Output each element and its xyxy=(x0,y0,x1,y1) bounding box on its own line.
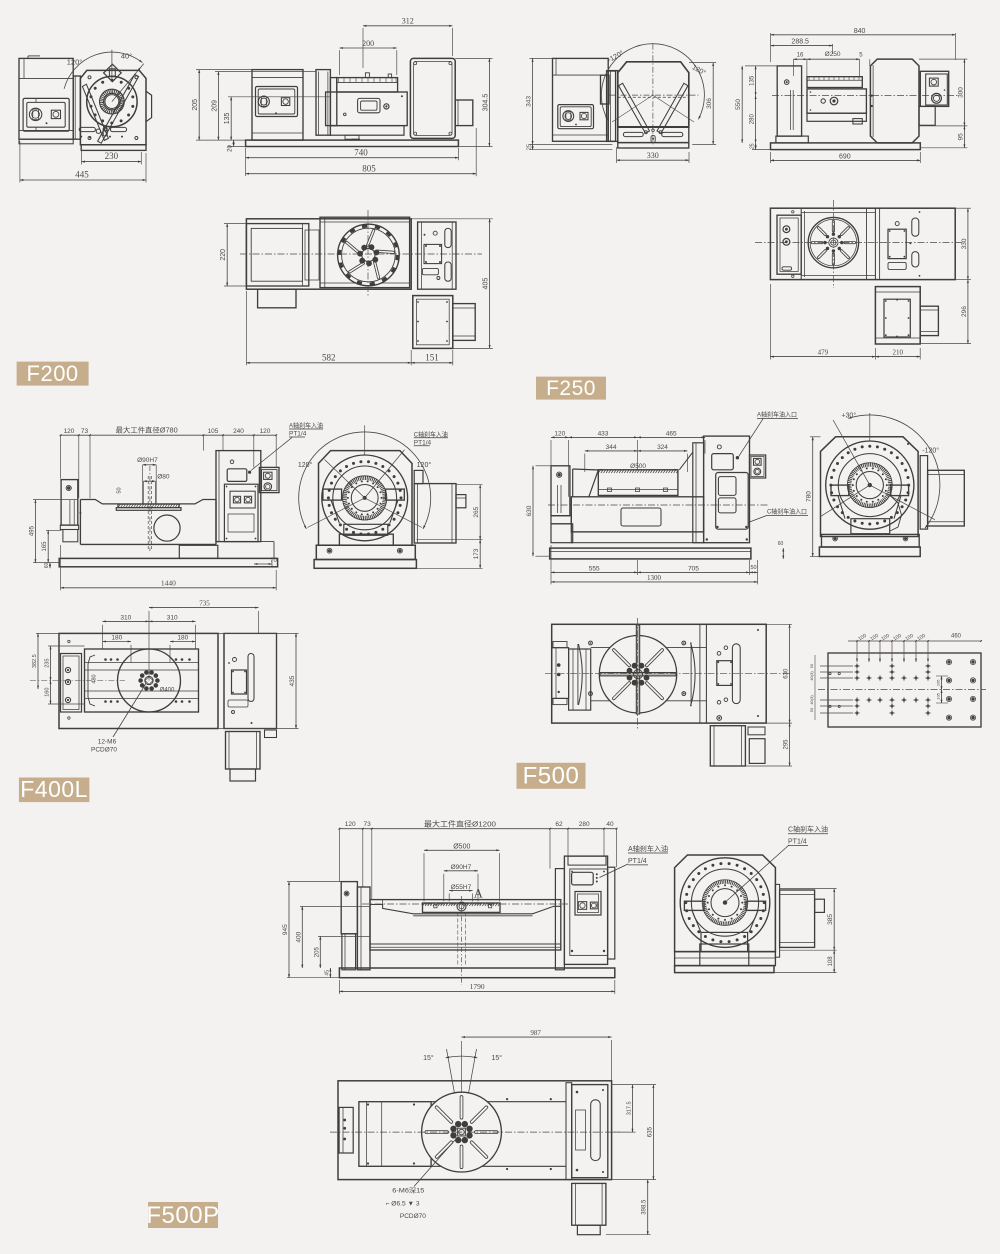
svg-text:382.5: 382.5 xyxy=(32,654,38,668)
svg-text:840: 840 xyxy=(854,28,866,35)
svg-text:180: 180 xyxy=(177,635,188,642)
svg-text:108: 108 xyxy=(828,956,834,967)
svg-text:344: 344 xyxy=(606,444,617,451)
svg-text:25: 25 xyxy=(750,143,756,149)
svg-text:50: 50 xyxy=(116,487,122,493)
svg-text:70: 70 xyxy=(270,558,277,564)
svg-text:16: 16 xyxy=(797,53,804,59)
svg-text:Ø500: Ø500 xyxy=(630,463,646,470)
svg-text:495: 495 xyxy=(29,525,35,536)
svg-text:120: 120 xyxy=(554,431,565,438)
svg-text:465: 465 xyxy=(666,431,677,438)
svg-text:805: 805 xyxy=(362,163,376,173)
svg-text:73: 73 xyxy=(81,428,89,435)
svg-text:105: 105 xyxy=(936,692,941,699)
svg-text:324: 324 xyxy=(657,444,668,451)
svg-text:40(3): 40(3) xyxy=(809,671,814,681)
svg-text:Ø90H7: Ø90H7 xyxy=(137,457,158,464)
svg-text:F500: F500 xyxy=(523,763,580,790)
svg-text:A轴刹车入油: A轴刹车入油 xyxy=(628,844,668,853)
svg-text:330: 330 xyxy=(647,151,659,160)
svg-text:135: 135 xyxy=(750,75,756,86)
svg-text:F250: F250 xyxy=(546,377,596,400)
svg-text:PT1/4: PT1/4 xyxy=(628,858,647,865)
svg-text:Ø55H7: Ø55H7 xyxy=(451,884,472,891)
svg-text:50: 50 xyxy=(809,663,814,668)
svg-text:PT1/4: PT1/4 xyxy=(414,439,432,446)
svg-text:120°: 120° xyxy=(298,461,313,469)
svg-text:60: 60 xyxy=(44,563,50,569)
svg-text:62: 62 xyxy=(555,821,563,828)
svg-text:最大工件直径Ø780: 最大工件直径Ø780 xyxy=(116,426,178,435)
svg-text:F200: F200 xyxy=(27,361,79,386)
svg-text:PCDØ70: PCDØ70 xyxy=(91,747,117,754)
svg-text:300: 300 xyxy=(957,87,964,98)
svg-text:C轴刹车入油: C轴刹车入油 xyxy=(414,429,448,438)
svg-text:95: 95 xyxy=(957,133,964,141)
svg-text:5: 5 xyxy=(859,52,863,58)
svg-text:A轴刹车入油: A轴刹车入油 xyxy=(289,421,323,430)
svg-text:C轴刹车入油: C轴刹车入油 xyxy=(788,825,828,834)
svg-text:A轴刹车油入口: A轴刹车油入口 xyxy=(757,410,797,419)
svg-text:50: 50 xyxy=(750,565,756,571)
svg-text:312: 312 xyxy=(402,17,414,26)
svg-text:200: 200 xyxy=(362,39,374,48)
svg-text:1300: 1300 xyxy=(647,574,662,582)
svg-text:987: 987 xyxy=(530,1029,541,1037)
svg-text:最大工件直径Ø1200: 最大工件直径Ø1200 xyxy=(424,818,496,828)
svg-text:50: 50 xyxy=(809,707,814,712)
svg-text:Ø500: Ø500 xyxy=(453,843,470,850)
svg-text:20: 20 xyxy=(228,145,234,152)
svg-text:310: 310 xyxy=(167,615,178,622)
svg-text:PT1/4: PT1/4 xyxy=(788,839,807,846)
svg-text:433: 433 xyxy=(598,431,609,438)
svg-text:400: 400 xyxy=(295,931,302,942)
svg-text:120°: 120° xyxy=(691,63,708,77)
svg-text:Ø90H7: Ø90H7 xyxy=(451,864,472,871)
svg-text:1790: 1790 xyxy=(470,982,485,991)
svg-text:105: 105 xyxy=(936,679,941,686)
svg-text:Ø80: Ø80 xyxy=(157,474,170,481)
svg-text:735: 735 xyxy=(199,600,210,608)
svg-text:582: 582 xyxy=(322,352,336,362)
svg-text:343: 343 xyxy=(526,96,533,107)
svg-text:288.5: 288.5 xyxy=(791,39,809,46)
svg-text:240: 240 xyxy=(233,428,244,435)
svg-text:480: 480 xyxy=(92,674,98,683)
svg-text:780: 780 xyxy=(806,491,813,502)
svg-text:120: 120 xyxy=(345,821,356,828)
svg-text:A: A xyxy=(474,887,483,901)
svg-text:460: 460 xyxy=(951,634,962,640)
svg-text:C轴刹车油入口: C轴刹车油入口 xyxy=(767,507,807,516)
svg-text:40°: 40° xyxy=(121,52,132,61)
svg-text:151: 151 xyxy=(425,352,439,362)
svg-text:550: 550 xyxy=(735,99,742,110)
svg-text:+30°: +30° xyxy=(841,412,856,420)
svg-text:555: 555 xyxy=(589,566,600,573)
svg-text:-120°: -120° xyxy=(606,49,625,64)
svg-text:630: 630 xyxy=(784,668,790,679)
svg-text:479: 479 xyxy=(818,349,829,357)
svg-text:317.5: 317.5 xyxy=(627,1101,633,1115)
svg-text:235: 235 xyxy=(45,659,51,668)
svg-text:265: 265 xyxy=(473,506,480,517)
svg-text:160: 160 xyxy=(45,688,51,697)
svg-text:230: 230 xyxy=(105,151,119,161)
svg-text:F500P: F500P xyxy=(146,1202,219,1229)
svg-text:296: 296 xyxy=(961,306,968,317)
svg-text:180: 180 xyxy=(111,635,122,642)
svg-text:⌐ Ø6.5 ▼ 3: ⌐ Ø6.5 ▼ 3 xyxy=(386,1201,420,1208)
svg-text:310: 310 xyxy=(120,615,131,622)
svg-text:F400L: F400L xyxy=(20,776,88,802)
svg-text:205: 205 xyxy=(314,947,320,958)
svg-text:220: 220 xyxy=(220,249,227,261)
svg-text:435: 435 xyxy=(289,675,296,686)
svg-text:280: 280 xyxy=(750,114,756,125)
svg-text:135: 135 xyxy=(224,112,231,124)
svg-text:105: 105 xyxy=(208,428,219,435)
svg-text:280: 280 xyxy=(579,821,590,828)
svg-text:PT1/4: PT1/4 xyxy=(289,431,307,438)
svg-text:705: 705 xyxy=(688,566,699,573)
svg-text:73: 73 xyxy=(363,821,371,828)
svg-text:120°: 120° xyxy=(417,461,432,469)
svg-text:173: 173 xyxy=(473,548,480,559)
svg-text:6-M6深15: 6-M6深15 xyxy=(392,1186,424,1195)
svg-text:304.5: 304.5 xyxy=(482,94,489,112)
svg-text:120: 120 xyxy=(64,428,75,435)
svg-text:PCDØ70: PCDØ70 xyxy=(400,1213,426,1220)
svg-text:635: 635 xyxy=(647,1126,653,1137)
svg-text:Ø250: Ø250 xyxy=(825,51,841,58)
svg-text:306: 306 xyxy=(706,98,713,109)
svg-text:15°: 15° xyxy=(492,1054,503,1062)
svg-text:Ø400: Ø400 xyxy=(160,688,175,694)
svg-text:445: 445 xyxy=(75,170,89,180)
svg-text:15°: 15° xyxy=(423,1054,434,1062)
svg-text:205: 205 xyxy=(192,99,199,111)
svg-text:45: 45 xyxy=(324,970,330,976)
svg-text:398.5: 398.5 xyxy=(642,1199,648,1215)
svg-text:405: 405 xyxy=(483,278,490,290)
svg-text:40(3): 40(3) xyxy=(809,695,814,705)
svg-text:60: 60 xyxy=(778,541,784,547)
svg-text:-120°: -120° xyxy=(922,446,939,454)
svg-text:25: 25 xyxy=(527,144,533,150)
svg-text:630: 630 xyxy=(526,505,533,516)
svg-text:12-M6: 12-M6 xyxy=(98,739,117,746)
svg-text:1440: 1440 xyxy=(161,579,176,588)
svg-text:295: 295 xyxy=(784,739,790,750)
svg-text:210: 210 xyxy=(893,349,904,357)
svg-text:945: 945 xyxy=(282,924,289,935)
svg-text:330: 330 xyxy=(961,238,968,249)
svg-text:120: 120 xyxy=(260,428,271,435)
svg-text:40: 40 xyxy=(606,821,614,828)
svg-text:165: 165 xyxy=(42,541,48,552)
svg-text:690: 690 xyxy=(839,153,851,160)
svg-text:740: 740 xyxy=(354,147,368,157)
svg-text:120°: 120° xyxy=(67,58,83,67)
svg-text:209: 209 xyxy=(211,100,218,112)
svg-text:385: 385 xyxy=(827,914,834,925)
